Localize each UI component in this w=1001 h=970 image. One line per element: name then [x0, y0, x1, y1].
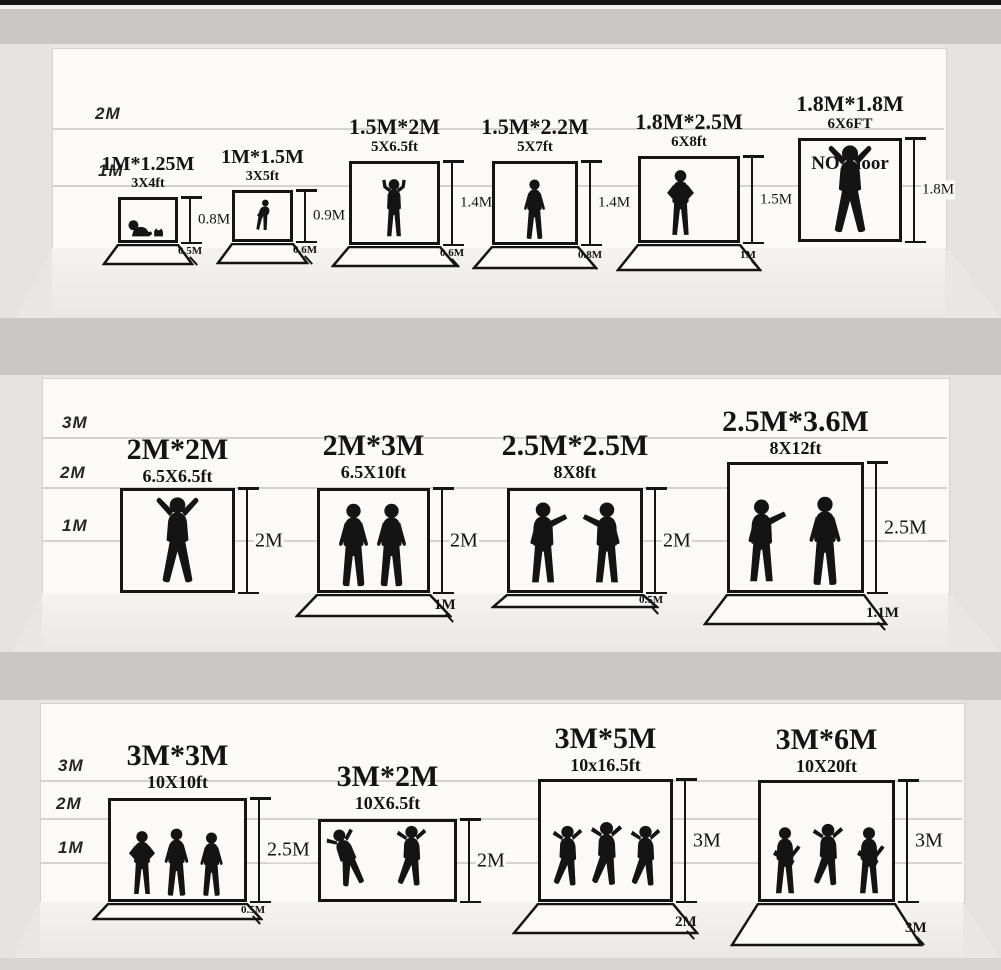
size-label: 2M*2M: [127, 434, 229, 466]
backdrop-3m-2m: 3M*2M 10X6.5ft 2M: [318, 819, 457, 902]
height-dimension: 0.8M: [189, 197, 191, 243]
backdrop-title: 2.5M*3.6M 8X12ft: [722, 406, 869, 458]
backdrop-1-8m-2-5m: 1.8M*2.5M 6X8ft 1.5M 1M: [638, 156, 740, 243]
size-label: 3M*5M: [555, 723, 657, 755]
backdrop-title: 1.8M*1.8M 6X6FT: [796, 92, 904, 132]
backdrop-title: 3M*5M 10x16.5ft: [555, 723, 657, 775]
bottom-bar: [0, 958, 1001, 970]
feet-label: 10x16.5ft: [555, 756, 657, 775]
floor-mat: [331, 246, 458, 268]
backdrop-frame: [108, 798, 247, 902]
backdrop-title: 1.5M*2M 5X6.5ft: [349, 115, 440, 155]
backdrop-frame: [492, 161, 578, 245]
three-people-silhouette: [111, 801, 244, 899]
two-men-pointing-silhouette: [730, 465, 861, 590]
teen-hands-on-hips-silhouette: [641, 159, 737, 240]
backdrop-frame: [120, 488, 235, 593]
child-cheering-silhouette: [352, 164, 437, 242]
floor-size-label: 1.1M: [866, 605, 899, 627]
backdrop-2m-2m: 2M*2M 6.5X6.5ft 2M: [120, 488, 235, 593]
child-standing-silhouette: [495, 164, 575, 242]
backdrop-frame: [318, 819, 457, 902]
backdrop-title: 1.5M*2.2M 5X7ft: [481, 115, 589, 155]
floor-size-label: 0.6M: [293, 244, 317, 261]
size-label: 3M*6M: [776, 724, 878, 756]
backdrop-frame: [118, 197, 178, 243]
size-label: 2.5M*3.6M: [722, 406, 869, 438]
feet-label: 6.5X6.5ft: [127, 467, 229, 486]
size-label: 1.5M*2.2M: [481, 115, 589, 139]
height-label: 2M: [662, 528, 692, 553]
height-label: 3M: [914, 829, 944, 854]
floor-mat: [491, 594, 659, 609]
feet-label: 8X8ft: [502, 463, 649, 482]
height-label: 1.5M: [759, 190, 793, 209]
feet-label: 8X12ft: [722, 439, 869, 458]
size-label: 1.8M*2.5M: [635, 110, 743, 134]
height-dimension: 2.5M: [258, 798, 260, 902]
height-label: 2M: [254, 528, 284, 553]
feet-label: 10X10ft: [127, 773, 229, 792]
two-dancers-silhouette: [321, 822, 454, 899]
backdrop-title: 3M*3M 10X10ft: [127, 740, 229, 792]
floor-size-label: 0.5M: [241, 904, 265, 921]
right-wall-panel: [948, 375, 1001, 652]
backdrop-title: 2M*2M 6.5X6.5ft: [127, 434, 229, 486]
backdrop-title: 1M*1.5M 3X5ft: [221, 147, 304, 184]
left-wall-panel: [0, 700, 40, 958]
floor-size-label: 2M: [675, 914, 697, 936]
scale-label-2m: 2M: [60, 463, 86, 483]
backdrop-frame: [317, 488, 430, 593]
floor-size-label: 0.6M: [440, 247, 464, 264]
backdrop-title: 3M*6M 10X20ft: [776, 724, 878, 776]
feet-label: 6.5X10ft: [323, 463, 425, 482]
toddler-silhouette: [235, 193, 290, 239]
size-label: 3M*2M: [337, 761, 439, 793]
backdrop-1m-1-25m: 1M*1.25M 3X4ft 0.8M 0.5M: [118, 197, 178, 243]
backdrop-2m-3m: 2M*3M 6.5X10ft 2M 1M: [317, 488, 430, 593]
backdrop-3m-6m: 3M*6M 10X20ft 3M 3M: [758, 780, 895, 902]
feet-label: 10X20ft: [776, 757, 878, 776]
backdrop-3m-3m: 3M*3M 10X10ft 2.5M 0.5M: [108, 798, 247, 902]
shelf-divider-1: [0, 318, 1001, 375]
feet-label: 5X6.5ft: [349, 139, 440, 155]
height-label: 0.8M: [197, 211, 231, 230]
backdrop-1-5m-2m: 1.5M*2M 5X6.5ft 1.4M 0.6M: [349, 161, 440, 245]
backdrop-1m-1-5m: 1M*1.5M 3X5ft 0.9M 0.6M: [232, 190, 293, 242]
scale-label-3m: 3M: [62, 413, 88, 433]
backdrop-1-5m-2-2m: 1.5M*2.2M 5X7ft 1.4M 0.8M: [492, 161, 578, 245]
floor-size-label: 1M: [434, 597, 456, 619]
backdrop-frame: [507, 488, 643, 593]
backdrop-size-chart: 2M 1M 1M*1.25M 3X4ft 0.8M 0.5M: [0, 0, 1001, 970]
floor-size-label: 0.8M: [578, 249, 602, 266]
height-label: 1.4M: [459, 194, 493, 213]
floor-mat: [730, 903, 923, 947]
floor-mat: [512, 903, 699, 935]
backdrop-frame: [538, 779, 673, 902]
height-label: 2.5M: [266, 838, 311, 863]
height-dimension: 2M: [654, 488, 656, 593]
height-label: 2M: [449, 528, 479, 553]
size-label: 2M*3M: [323, 430, 425, 462]
backdrop-2-5m-3-6m: 2.5M*3.6M 8X12ft 2.5M 1.1M: [727, 462, 864, 593]
scale-label-3m: 3M: [58, 756, 84, 776]
feet-label: 3X5ft: [221, 169, 304, 184]
height-dimension: 2M: [468, 819, 470, 902]
shelf-divider-top: [0, 9, 1001, 44]
size-label: 2.5M*2.5M: [502, 430, 649, 462]
left-wall-panel: [0, 375, 42, 652]
feet-label: 3X4ft: [102, 176, 195, 191]
height-label: 2M: [476, 848, 506, 873]
two-men-talking-silhouette: [510, 491, 640, 590]
height-dimension: 1.4M: [451, 161, 453, 245]
height-dimension: 1.8M: [913, 138, 915, 242]
floor-size-label: 3M: [905, 920, 927, 942]
height-label: 2.5M: [883, 515, 928, 540]
shelf-row-2: 3M 2M 1M 2M*2M 6.5X6.5ft 2M 2M*3M 6.5X: [0, 375, 1001, 652]
backdrop-frame: [638, 156, 740, 243]
backdrop-1-8m-1-8m: 1.8M*1.8M 6X6FT NO Floor 1.8M: [798, 138, 902, 242]
floor-mat: [92, 903, 263, 921]
two-men-standing-silhouette: [320, 491, 427, 590]
floor-size-label: 0.5M: [639, 594, 663, 611]
three-musicians-silhouette: [761, 783, 892, 899]
shelf-row-1: 2M 1M 1M*1.25M 3X4ft 0.8M 0.5M: [0, 44, 1001, 318]
backdrop-frame: [758, 780, 895, 902]
height-label: 0.9M: [312, 207, 346, 226]
backdrop-frame: NO Floor: [798, 138, 902, 242]
scale-label-2m: 2M: [56, 794, 82, 814]
baby-and-cat-silhouette: [121, 200, 175, 240]
size-label: 3M*3M: [127, 740, 229, 772]
height-dimension: 0.9M: [304, 190, 306, 242]
backdrop-title: 1.8M*2.5M 6X8ft: [635, 110, 743, 150]
floor-size-label: 0.5M: [178, 245, 202, 262]
shelf-divider-2: [0, 652, 1001, 700]
scale-label-2m: 2M: [95, 104, 121, 124]
height-dimension: 3M: [684, 779, 686, 902]
left-wall-panel: [0, 44, 52, 318]
height-label: 1.8M: [921, 181, 955, 200]
three-dancers-silhouette: [541, 782, 670, 899]
height-dimension: 3M: [906, 780, 908, 902]
feet-label: 5X7ft: [481, 139, 589, 155]
scale-label-1m: 1M: [58, 838, 84, 858]
backdrop-2-5m-2-5m: 2.5M*2.5M 8X8ft 2M 0.5M: [507, 488, 643, 593]
height-dimension: 1.5M: [751, 156, 753, 243]
backdrop-frame: [727, 462, 864, 593]
height-dimension: 2.5M: [875, 462, 877, 593]
right-wall-panel: [963, 700, 1001, 958]
height-label: 3M: [692, 828, 722, 853]
backdrop-frame: [232, 190, 293, 242]
shelf-row-3: 3M 2M 1M 3M*3M 10X10ft 2.5M: [0, 700, 1001, 958]
floor-size-label: 1M: [740, 249, 761, 266]
size-label: 1M*1.25M: [102, 154, 195, 176]
man-arms-raised-silhouette: [123, 491, 232, 590]
height-label: 1.4M: [597, 194, 631, 213]
floor-mat: [703, 594, 888, 626]
height-dimension: 2M: [441, 488, 443, 593]
feet-label: 6X8ft: [635, 134, 743, 150]
backdrop-title: 2.5M*2.5M 8X8ft: [502, 430, 649, 482]
scale-label-1m: 1M: [62, 516, 88, 536]
size-label: 1.8M*1.8M: [796, 92, 904, 116]
backdrop-title: 2M*3M 6.5X10ft: [323, 430, 425, 482]
feet-label: 10X6.5ft: [337, 794, 439, 813]
height-dimension: 1.4M: [589, 161, 591, 245]
floor-mat: [295, 594, 452, 618]
backdrop-title: 1M*1.25M 3X4ft: [102, 154, 195, 191]
backdrop-frame: [349, 161, 440, 245]
size-label: 1M*1.5M: [221, 147, 304, 169]
backdrop-3m-5m: 3M*5M 10x16.5ft 3M 2M: [538, 779, 673, 902]
height-dimension: 2M: [246, 488, 248, 593]
backdrop-title: 3M*2M 10X6.5ft: [337, 761, 439, 813]
size-label: 1.5M*2M: [349, 115, 440, 139]
feet-label: 6X6FT: [796, 116, 904, 132]
man-arms-raised-silhouette: [801, 141, 899, 239]
